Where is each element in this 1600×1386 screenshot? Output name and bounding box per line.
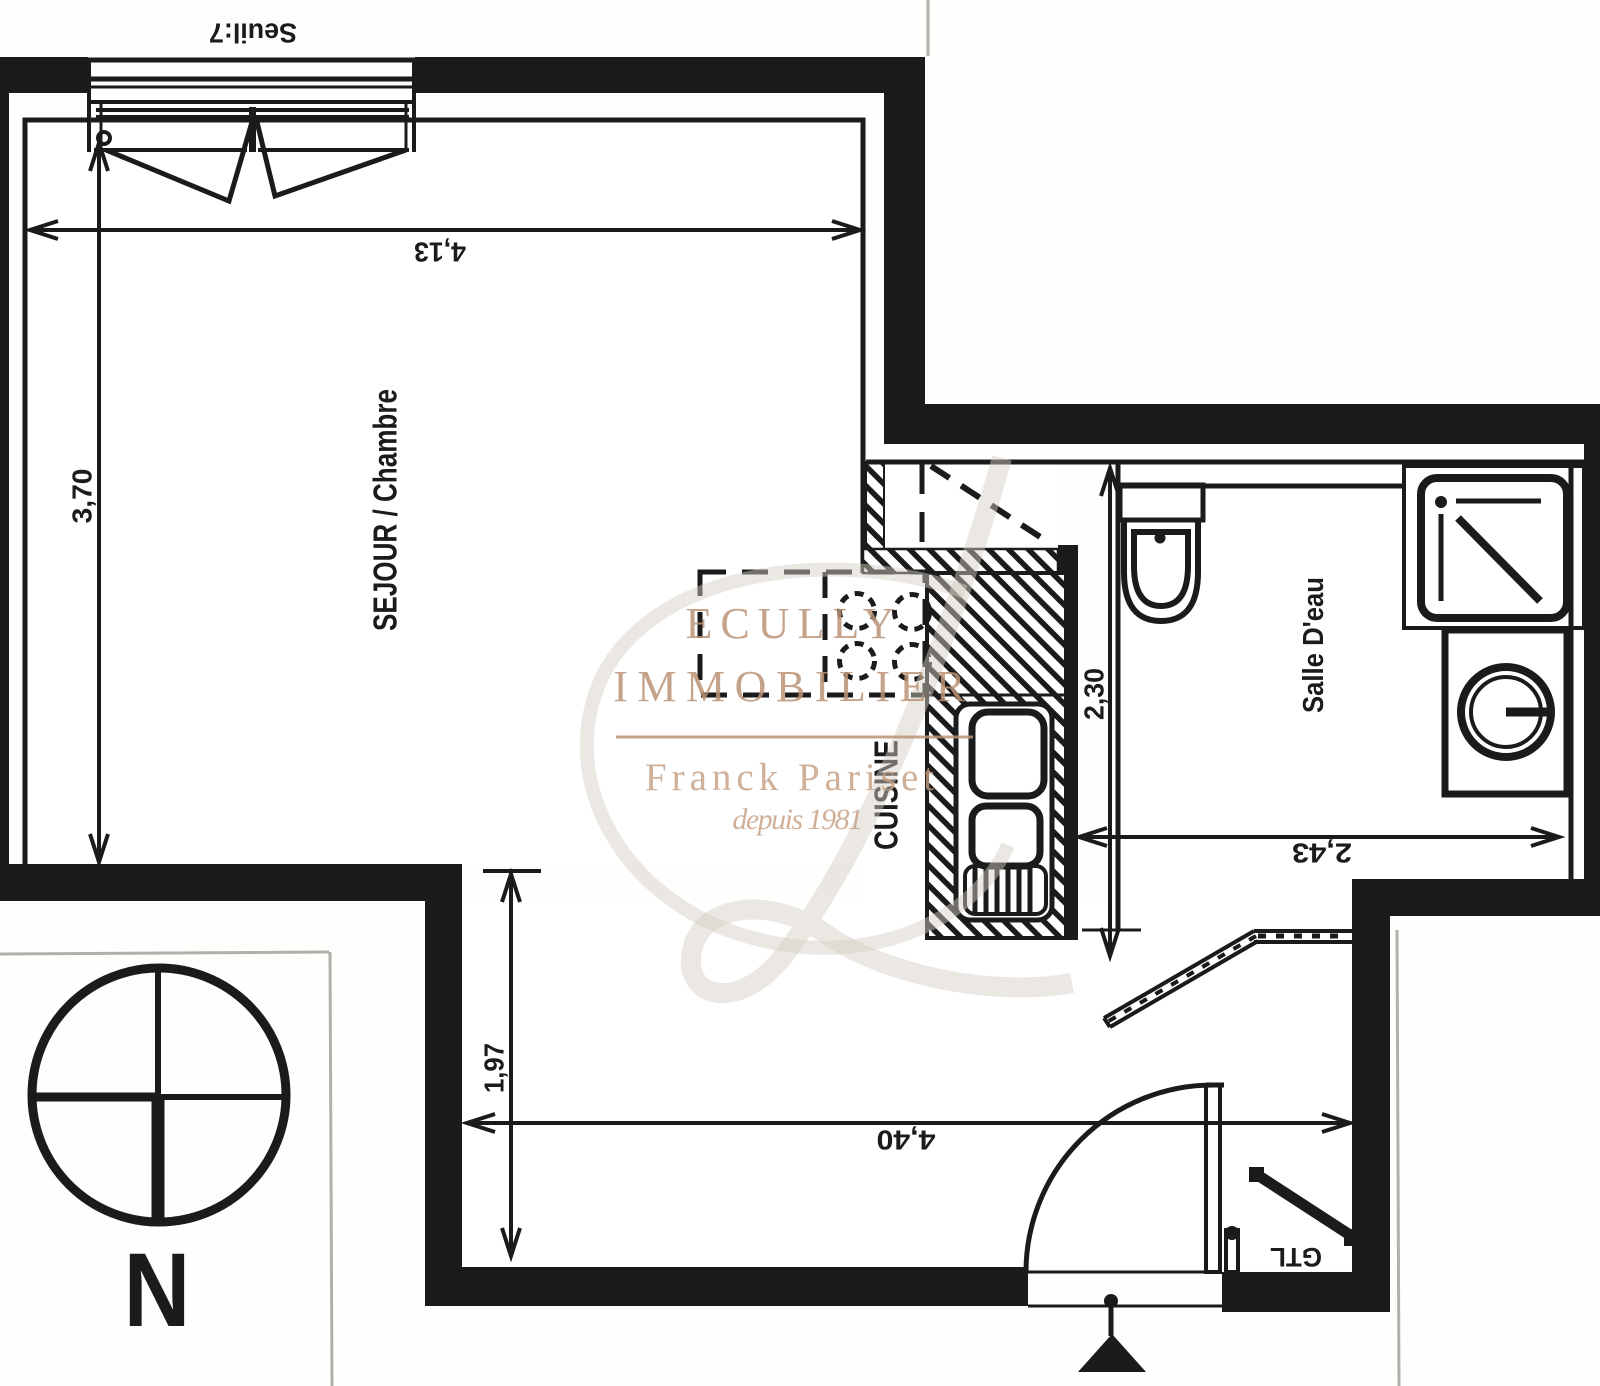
svg-text:1,97: 1,97: [479, 1043, 510, 1093]
svg-text:4,13: 4,13: [414, 237, 466, 268]
svg-text:N: N: [124, 1230, 191, 1348]
svg-text:3,70: 3,70: [67, 469, 98, 524]
svg-text:Salle D'eau: Salle D'eau: [1298, 577, 1330, 713]
svg-text:2,43: 2,43: [1292, 838, 1352, 869]
svg-text:depuis 1981: depuis 1981: [732, 803, 861, 836]
svg-text:IMMOBILIER: IMMOBILIER: [613, 662, 974, 711]
svg-text:ECULLY: ECULLY: [685, 599, 902, 648]
svg-text:GTL: GTL: [1270, 1242, 1322, 1272]
svg-text:Seuil:7: Seuil:7: [209, 18, 297, 49]
svg-text:SEJOUR / Chambre: SEJOUR / Chambre: [367, 389, 404, 631]
svg-text:Franck Pariset: Franck Pariset: [645, 756, 939, 799]
svg-text:4,40: 4,40: [877, 1125, 936, 1156]
svg-text:2,30: 2,30: [1079, 668, 1110, 720]
